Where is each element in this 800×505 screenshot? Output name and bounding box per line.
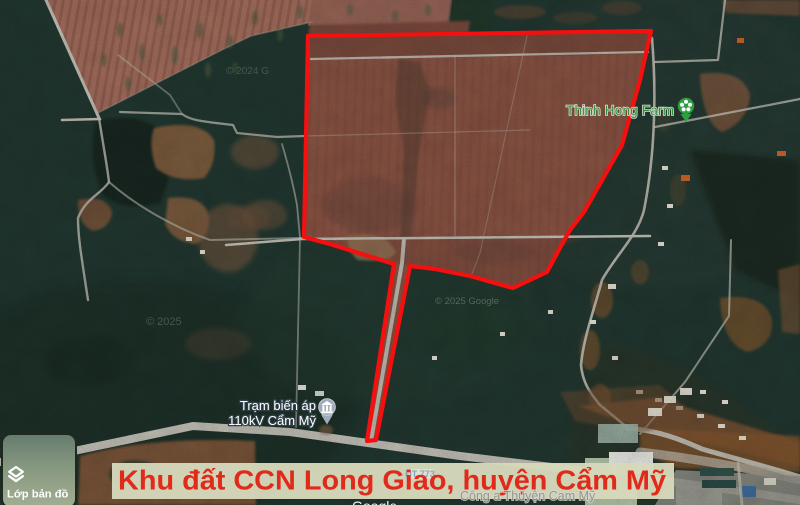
svg-text:© 2025 Google: © 2025 Google	[435, 296, 499, 307]
svg-text:110kV Cẩm Mỹ: 110kV Cẩm Mỹ	[228, 413, 316, 428]
svg-text:Công a Thuyện Cam Mỹ: Công a Thuyện Cam Mỹ	[460, 489, 596, 503]
svg-text:© 2024 G: © 2024 G	[226, 66, 269, 77]
svg-text:Trạm biến áp: Trạm biến áp	[240, 398, 316, 413]
svg-text:Thinh Hong Farm: Thinh Hong Farm	[566, 103, 674, 118]
svg-text:Lớp bản đồ: Lớp bản đồ	[7, 489, 69, 501]
svg-text:Google: Google	[352, 498, 397, 505]
svg-text:© 2025: © 2025	[146, 316, 182, 328]
